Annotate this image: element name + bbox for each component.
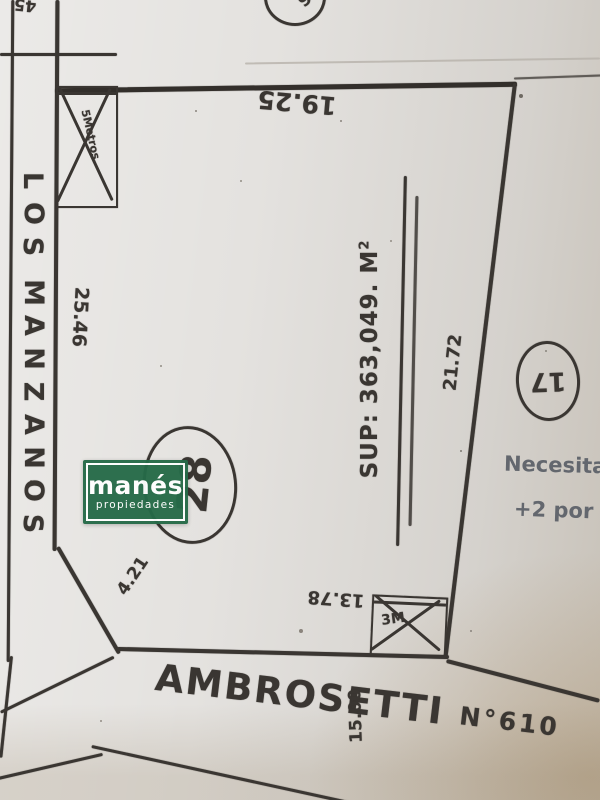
lot-corner-chamfer-line (56, 546, 121, 654)
street-bottom-number: N°610 (458, 701, 561, 742)
top-circle-label: 6 (292, 0, 315, 10)
top-line-extension (514, 74, 600, 79)
neighbor-lot-number: 17 (529, 365, 566, 396)
street-letter: L (17, 172, 50, 189)
faint-crease-line (245, 58, 600, 65)
area-underline-1 (396, 176, 407, 546)
note-line-2: +2 por (514, 497, 594, 524)
agency-logo-title: manés (88, 473, 183, 499)
ambrosetti-lower-sidewalk-line (91, 745, 350, 800)
street-letter: Z (16, 382, 49, 402)
bottom-boundary-box: 3M (370, 594, 449, 658)
area-superscript: 2 (357, 240, 372, 250)
street-letter: S (16, 237, 49, 256)
street-letter: O (16, 479, 49, 502)
measure-street-width: 15.00 (345, 680, 368, 753)
street-letter: S (16, 514, 49, 533)
measure-left: 25.46 (67, 282, 93, 351)
measure-right: 21.72 (438, 323, 467, 403)
street-letter: O (16, 202, 49, 225)
street-name-left: LOSMANZANOS (13, 164, 53, 540)
plot-plan-photo: 5Metros. 3M 19.25 25.46 21.72 13.78 4.21… (0, 0, 600, 800)
ambrosetti-upper-line-left (0, 656, 115, 714)
agency-logo: manés propiedades (83, 460, 188, 524)
street-letter: A (17, 315, 50, 336)
street-letter: N (16, 446, 49, 469)
measure-top: 19.25 (250, 84, 344, 121)
area-label: SUP: 363,049. (357, 283, 383, 479)
lot-left-boundary (53, 0, 59, 551)
street-letter: M (17, 279, 50, 306)
neighbor-lot-circle: 17 (513, 339, 582, 423)
bottom-left-corner-line (0, 753, 103, 780)
note-line-1: Necesita (504, 452, 600, 479)
street-letter: N (16, 347, 49, 370)
agency-logo-subtitle: propiedades (96, 499, 175, 512)
bottom-box-label: 3M (380, 610, 406, 629)
neighbor-top-line (0, 53, 117, 56)
street-letter: A (17, 414, 50, 435)
area-annotation: SUP: 363,049. M2 (357, 214, 387, 504)
measure-chamfer: 4.21 (107, 545, 158, 608)
street-bottom-label: AMBROSETTI (153, 656, 447, 733)
measure-bottom: 13.78 (296, 585, 375, 611)
top-edge-circle: 6 (264, 0, 326, 26)
area-unit: M (357, 250, 383, 274)
area-underline-2 (409, 196, 418, 526)
top-left-label: 45 (13, 0, 37, 16)
